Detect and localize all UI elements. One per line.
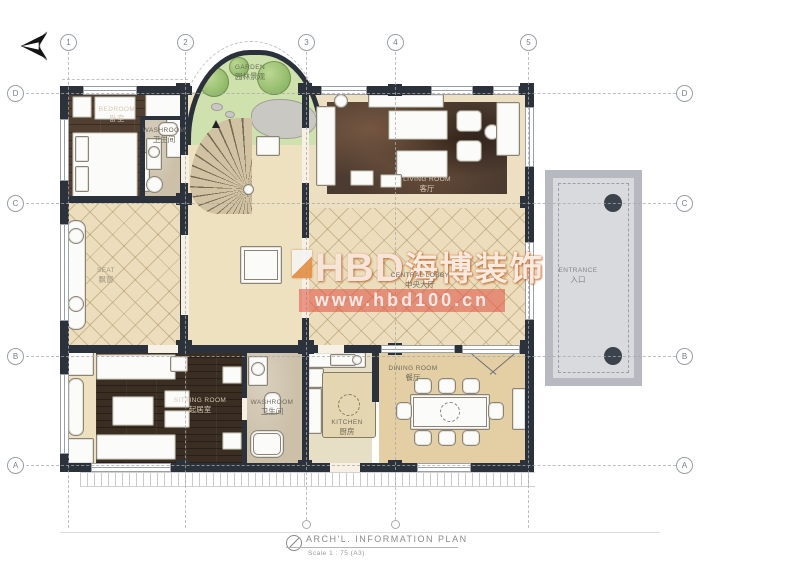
drawing-number-icon <box>286 535 302 551</box>
window <box>382 346 454 352</box>
grid-line-B <box>26 356 676 357</box>
dining-chair <box>462 430 480 446</box>
watermark-url-band: www.hbd100.cn <box>299 289 505 312</box>
grid-bubble-C-right: C <box>676 195 693 212</box>
seat-cushion <box>68 296 84 312</box>
central-lobby-label: CENTRAL LOBBY 中央大厅 <box>391 272 450 290</box>
grid-line-A <box>26 465 676 466</box>
grid-line-5 <box>528 52 529 528</box>
sofa <box>96 434 176 460</box>
overhang-line <box>62 79 188 80</box>
dining-chair <box>488 402 504 420</box>
grid-line-D <box>26 93 676 94</box>
dining-chair <box>414 430 432 446</box>
chaise <box>496 102 520 156</box>
window <box>61 375 68 453</box>
floor-plan-sheet: 1 2 3 4 5 D C B A D C B A GARDEN 园林景观 BE… <box>0 0 800 566</box>
armchair <box>456 110 482 132</box>
window <box>61 225 68 320</box>
living-label: LIVING ROOM 客厅 <box>403 176 451 194</box>
grid-bubble-5: 5 <box>520 34 537 51</box>
kitchen-label: KITCHEN 厨房 <box>331 419 362 437</box>
sink <box>251 362 265 376</box>
pier <box>520 196 534 208</box>
garden-stone <box>211 103 223 111</box>
garden-label: GARDEN 园林景观 <box>235 64 265 82</box>
window-seat-label: SEAT 飘窗 <box>97 267 115 285</box>
grid-bubble-C-left: C <box>7 195 24 212</box>
dining-chair <box>438 430 456 446</box>
dining-label: DINING ROOM 餐厅 <box>388 365 437 383</box>
exterior-steps <box>80 472 535 487</box>
door-opening <box>148 345 178 353</box>
stair-newel <box>243 184 254 195</box>
entrance-label: ENTRANCE 入口 <box>559 267 598 285</box>
title-block-rule <box>60 532 660 533</box>
pillow <box>75 136 89 162</box>
pier <box>176 340 192 354</box>
grid-bubble-D-right: D <box>676 85 693 102</box>
coffee-table <box>396 150 448 178</box>
grid-line-2 <box>185 52 186 528</box>
pier <box>520 460 534 472</box>
bathtub <box>250 430 284 458</box>
hbd-logo-icon <box>292 250 312 278</box>
grid-bubble-A-left: A <box>7 457 24 474</box>
closet-cabinet <box>145 94 183 118</box>
grid-bubble-B-left: B <box>7 348 24 365</box>
grid-line-1 <box>68 52 69 528</box>
pier <box>298 460 312 472</box>
wall <box>372 350 379 402</box>
seat-cushion <box>68 228 84 244</box>
stool <box>380 174 402 188</box>
wall <box>60 196 188 203</box>
sofa <box>316 106 336 186</box>
grid-terminator <box>302 520 311 529</box>
dining-chair <box>396 402 412 420</box>
door-opening <box>242 398 247 420</box>
table-centerpiece <box>440 402 460 422</box>
nightstand <box>72 96 92 118</box>
grid-terminator <box>391 520 400 529</box>
grid-bubble-2: 2 <box>177 34 194 51</box>
window <box>61 120 68 180</box>
stool <box>350 170 374 186</box>
pier <box>176 460 190 472</box>
wall <box>140 116 188 120</box>
grid-bubble-1: 1 <box>60 34 77 51</box>
grid-bubble-3: 3 <box>298 34 315 51</box>
tv-console <box>368 94 444 108</box>
sofa <box>96 354 176 380</box>
planter <box>256 136 280 156</box>
armchair <box>456 140 482 162</box>
grid-bubble-B-right: B <box>676 348 693 365</box>
basin <box>146 176 163 193</box>
dining-chair <box>462 378 480 394</box>
title-underline <box>286 547 458 548</box>
dining-chair <box>438 378 456 394</box>
sideboard <box>512 388 526 430</box>
island-lamp <box>338 394 360 416</box>
watermark-url: www.hbd100.cn <box>315 290 489 311</box>
plant <box>334 94 348 108</box>
sink <box>148 146 160 158</box>
cabinet <box>222 366 242 384</box>
french-door <box>463 346 519 353</box>
grid-bubble-A-right: A <box>676 457 693 474</box>
sitting-label: SITTING ROOM 起居室 <box>174 397 226 415</box>
kitchen-counter <box>308 388 322 434</box>
stair-direction-arrow <box>212 120 220 128</box>
cabinet <box>222 432 242 450</box>
center-table <box>112 396 154 426</box>
window-seat <box>68 378 84 436</box>
grid-bubble-4: 4 <box>387 34 404 51</box>
grid-bubble-D-left: D <box>7 85 24 102</box>
garden-stone <box>225 111 235 118</box>
door-opening <box>318 345 344 353</box>
pier <box>520 340 534 354</box>
grid-line-3 <box>306 52 307 520</box>
washroom-top-label: WASHROOM 卫生间 <box>143 127 186 145</box>
north-compass-icon <box>16 28 52 69</box>
bedroom-label: BEDROOM 卧室 <box>99 106 135 124</box>
drawing-title: ARCH'L. INFORMATION PLAN <box>306 534 468 544</box>
foyer-feature-table <box>240 246 282 284</box>
grid-line-C <box>26 203 676 204</box>
drawing-scale: Scale 1 : 75 (A3) <box>308 550 365 557</box>
pillow <box>75 166 89 192</box>
washroom-bottom-label: WASHROOM 卫生间 <box>251 399 294 417</box>
sofa <box>388 110 448 140</box>
